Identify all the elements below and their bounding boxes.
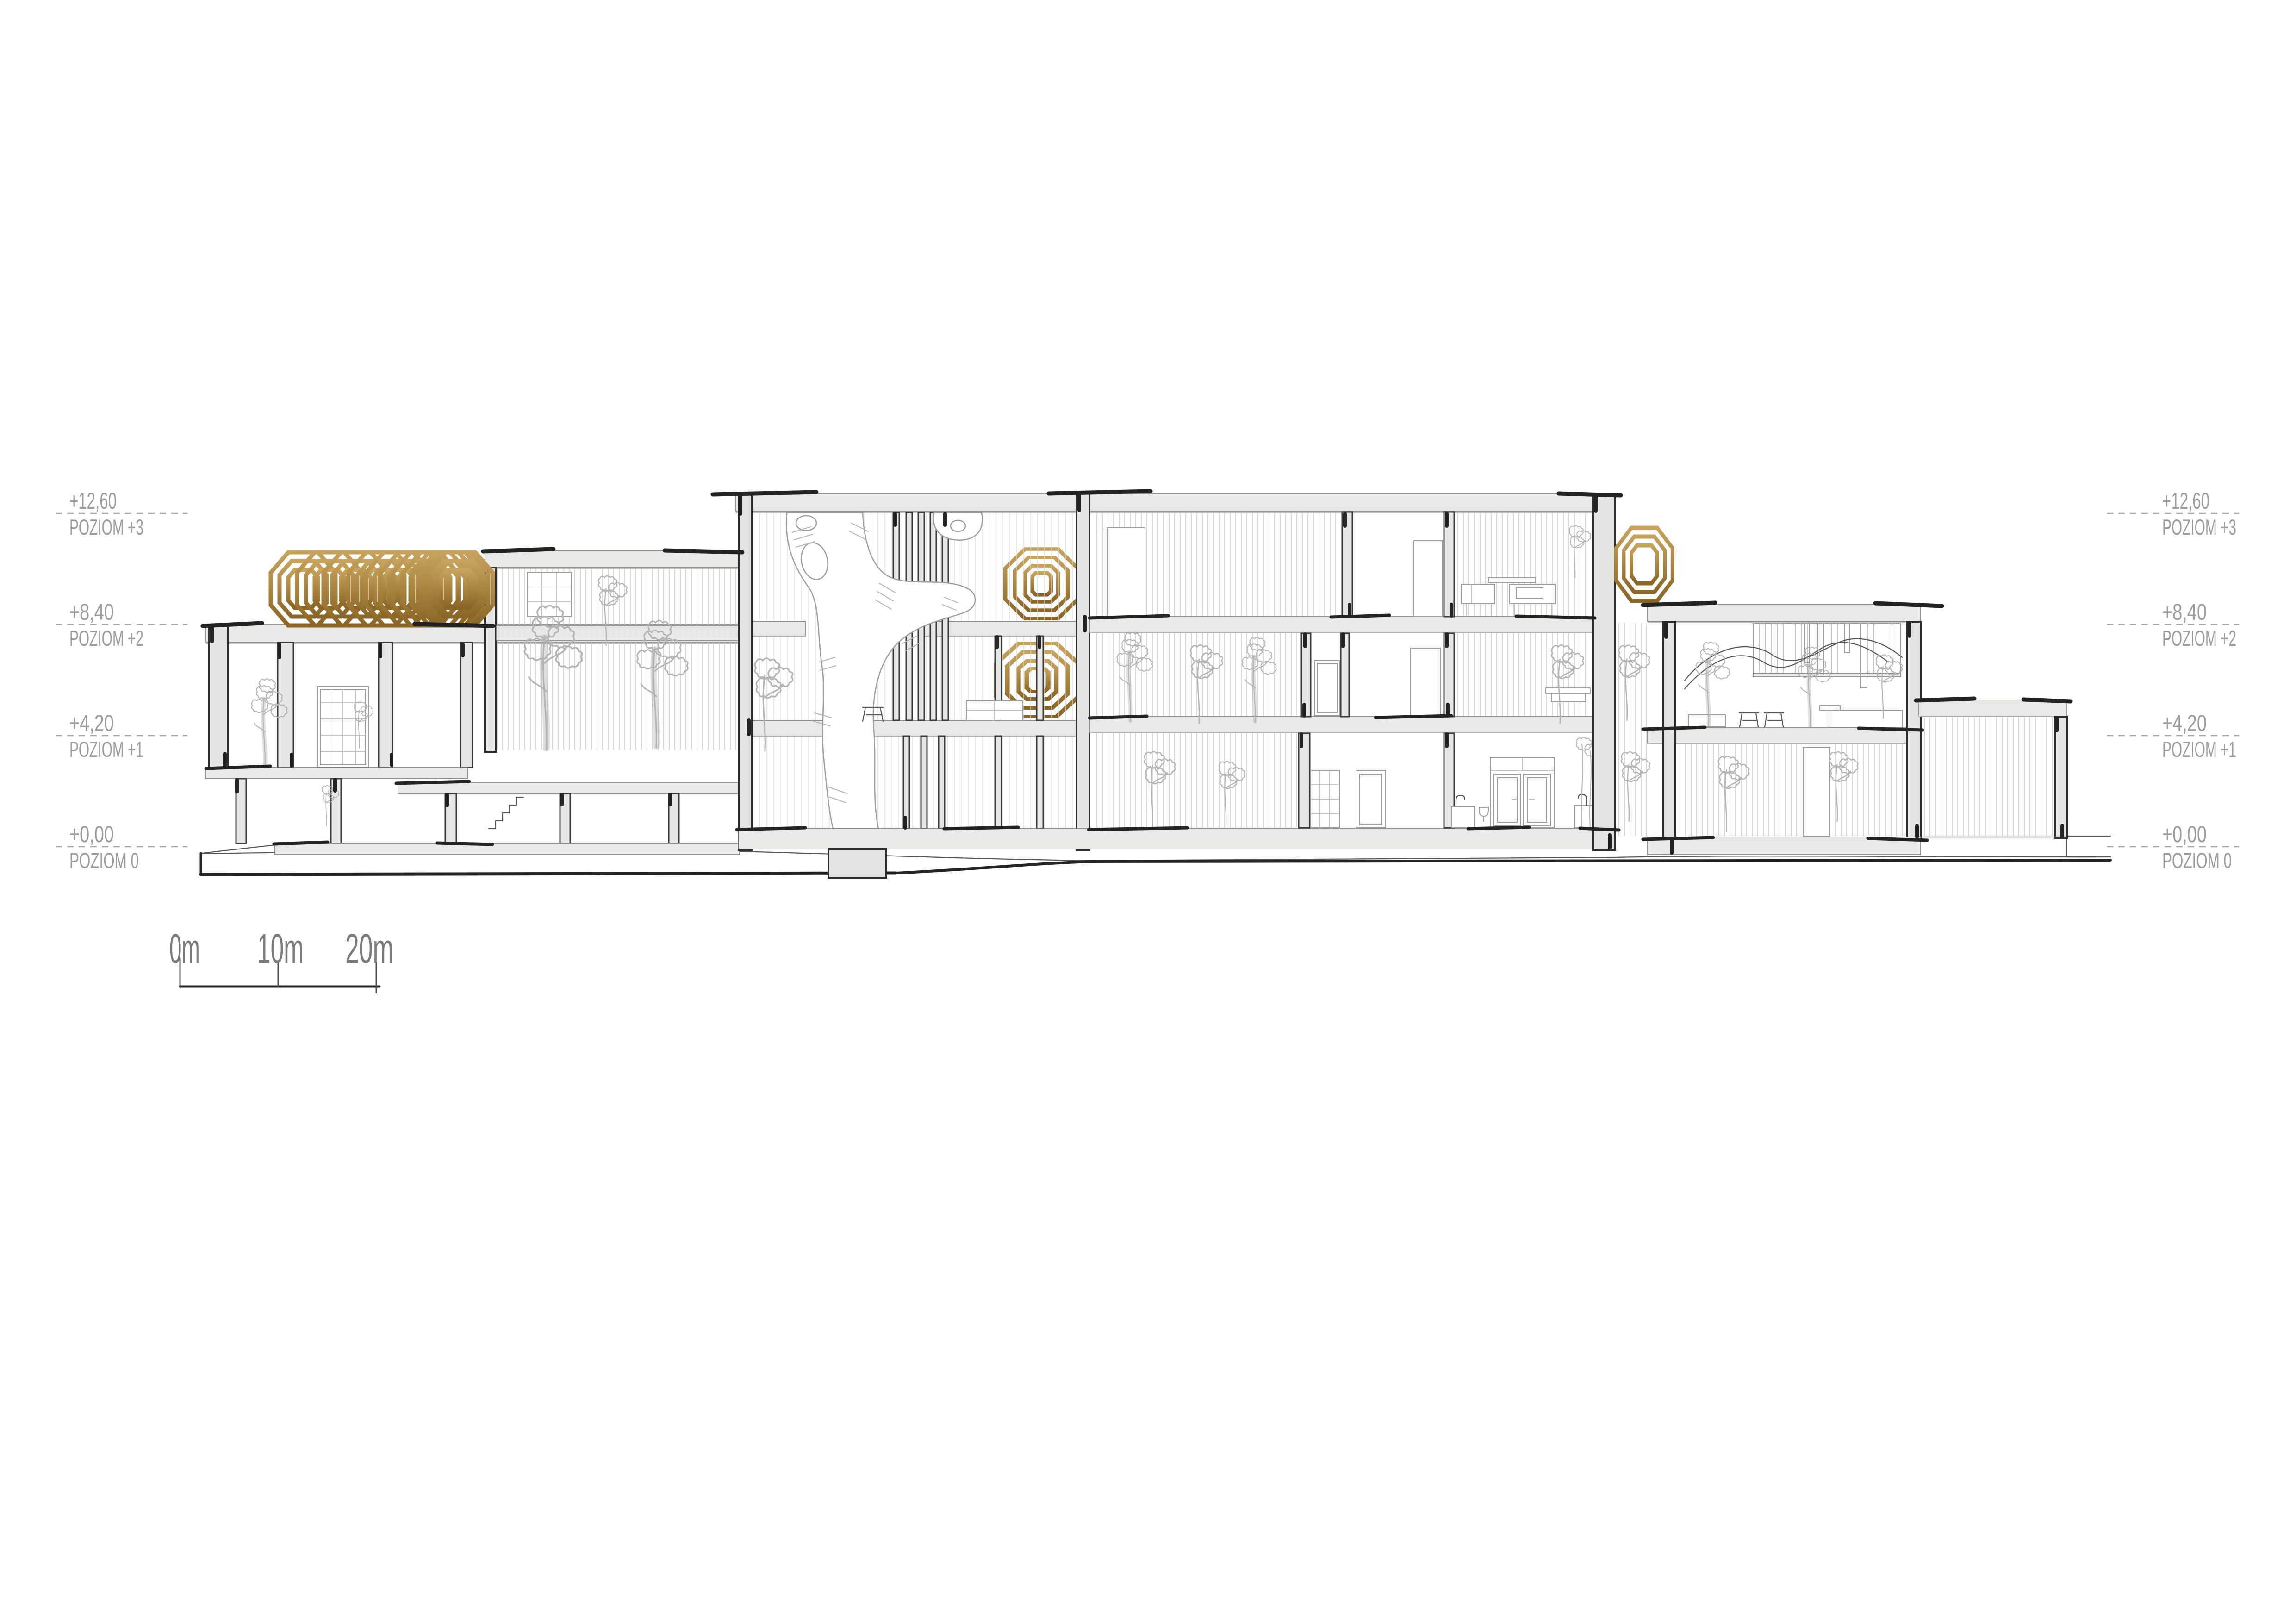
level-line-2-left: +8,40 POZIOM +2 <box>56 599 187 650</box>
level-elevation-label: +0,00 <box>2162 821 2207 847</box>
poziom-label: POZIOM +1 <box>69 737 143 762</box>
gold-octagon-right <box>1616 528 1673 601</box>
gridded-window <box>317 687 368 768</box>
poziom-label: POZIOM +1 <box>2162 737 2236 762</box>
poziom-label: POZIOM +2 <box>2162 626 2236 650</box>
poziom-label: POZIOM +3 <box>69 515 143 539</box>
level-line-0-left: +0,00 POZIOM 0 <box>56 821 187 873</box>
level-line-0-right: +0,00 POZIOM 0 <box>2107 821 2239 873</box>
level-elevation-label: +12,60 <box>2162 488 2209 514</box>
level-markers-right: +12,60 POZIOM +3 +8,40 POZIOM +2 +4,20 P… <box>2107 488 2239 873</box>
level-line-3-right: +12,60 POZIOM +3 <box>2107 488 2239 539</box>
scale-bar: 0m 10m 20m <box>169 926 393 993</box>
poziom-label: POZIOM +3 <box>2162 515 2236 539</box>
level-line-1-right: +4,20 POZIOM +1 <box>2107 710 2239 762</box>
level-elevation-label: +8,40 <box>69 599 114 625</box>
level-line-2-right: +8,40 POZIOM +2 <box>2107 599 2239 650</box>
architectural-section-canvas: +12,60 POZIOM +3 +8,40 POZIOM +2 +4,20 P… <box>0 0 2296 1624</box>
level-elevation-label: +12,60 <box>69 488 117 514</box>
level-elevation-label: +8,40 <box>2162 599 2207 625</box>
gold-octagon-pergola-tunnel <box>271 552 493 625</box>
level-elevation-label: +4,20 <box>2162 710 2207 736</box>
scale-tick-label: 0m <box>169 926 200 972</box>
poziom-label: POZIOM 0 <box>2162 848 2232 873</box>
level-elevation-label: +0,00 <box>69 821 114 847</box>
level-line-1-left: +4,20 POZIOM +1 <box>56 710 187 762</box>
stairs <box>489 797 523 829</box>
scale-tick-label: 20m <box>345 926 393 972</box>
ceiling-baffles <box>1753 623 1900 677</box>
main-building-section <box>1089 493 1615 850</box>
poziom-label: POZIOM +2 <box>69 626 143 650</box>
scale-tick-label: 10m <box>257 926 304 972</box>
poziom-label: POZIOM 0 <box>69 848 139 873</box>
level-markers-left: +12,60 POZIOM +3 +8,40 POZIOM +2 +4,20 P… <box>56 488 187 873</box>
double-door <box>1490 757 1554 828</box>
gridded-window-small <box>528 572 571 617</box>
ground-floor-fixtures <box>1311 737 1600 828</box>
annex-section <box>1918 700 2067 838</box>
level-line-3-left: +12,60 POZIOM +3 <box>56 488 187 539</box>
level-elevation-label: +4,20 <box>69 710 114 736</box>
